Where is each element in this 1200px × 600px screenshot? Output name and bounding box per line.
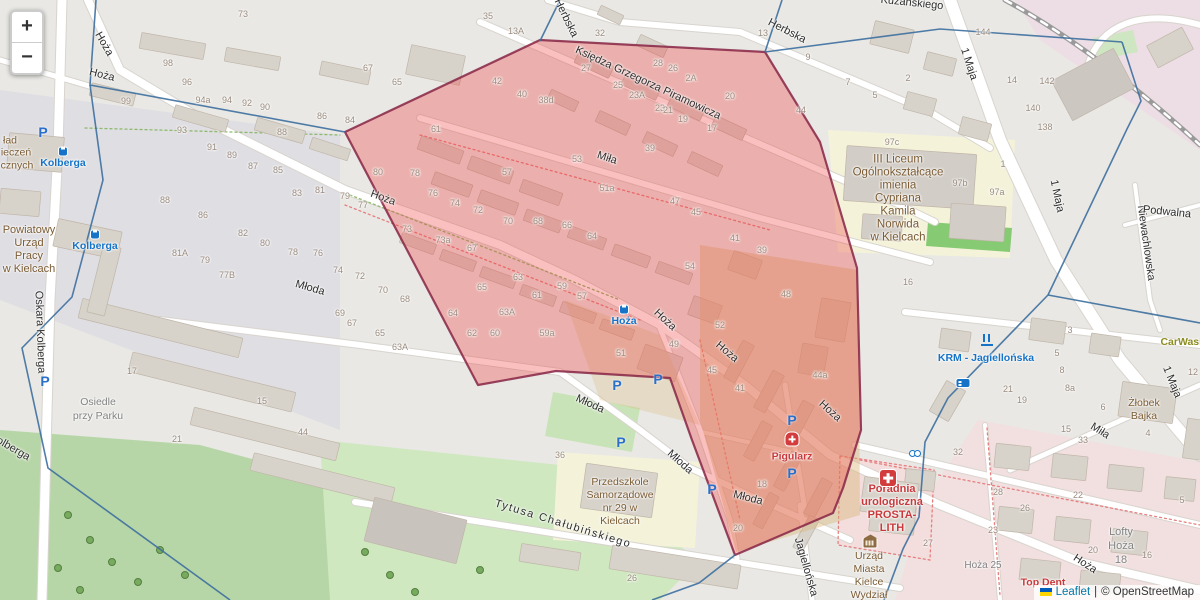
map-canvas[interactable]: HożaHożaHożaHożaHożaHożaHożaMiłaMiłaMłod… <box>0 0 1200 600</box>
cell-edge <box>652 555 735 600</box>
attribution-separator: | <box>1094 586 1097 598</box>
cell-edge <box>1048 295 1200 323</box>
leaflet-link[interactable]: Leaflet <box>1056 586 1091 598</box>
zoom-control: + − <box>10 10 44 75</box>
highlighted-polygon[interactable] <box>345 40 861 555</box>
cell-edge <box>884 295 1048 600</box>
openstreetmap-link[interactable]: © OpenStreetMap <box>1101 586 1194 598</box>
cell-edge <box>22 85 230 600</box>
overlay-layer <box>0 0 1200 600</box>
zoom-out-button[interactable]: − <box>12 43 42 73</box>
cell-edge <box>765 0 782 52</box>
zoom-in-button[interactable]: + <box>12 12 42 43</box>
cell-edge <box>540 0 560 41</box>
ukraine-flag-icon <box>1040 588 1052 596</box>
cell-edge <box>765 29 1122 52</box>
cell-edge <box>90 0 345 132</box>
cell-edge <box>1048 42 1141 295</box>
attribution-bar: Leaflet | © OpenStreetMap <box>1034 585 1200 600</box>
